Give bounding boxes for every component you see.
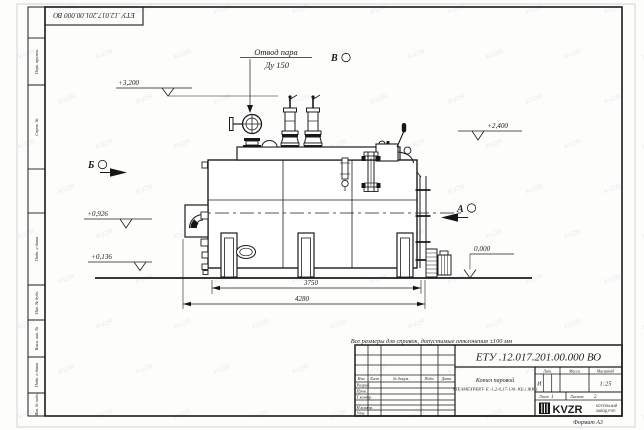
lit-label: Лит. — [542, 368, 552, 373]
margin-label: Справ. № — [34, 118, 39, 135]
elevation-mark: +2,400 — [458, 122, 522, 140]
margin-label: Подп. и дата — [34, 363, 39, 389]
drawing-sheet: KVZRKVZRKVZRKVZRKVZRKVZRKVZRKVZRKVZRKVZR… — [0, 0, 644, 430]
support-leg — [298, 233, 314, 277]
callout-line1: Отвод пара — [254, 47, 297, 57]
callout-line2: Ду 150 — [264, 60, 290, 70]
title-block-left-grid: Изм. Лист № докум. Подп. Дата Разраб. Пр… — [355, 345, 455, 416]
view-label: Б — [87, 160, 95, 171]
product-model: STEAMEXPERT- Е -1,2-0,17-130- КБ ( ЖК ) — [453, 387, 538, 393]
view-mark-v: В — [330, 53, 350, 64]
mass-label: Масса — [568, 368, 580, 373]
dome-cap — [262, 141, 277, 148]
logo-text: KVZR — [553, 404, 583, 416]
manhole — [237, 246, 256, 259]
safety-valve — [281, 95, 299, 148]
flipped-doc-number: ЕТУ .12.017.201.00.000 ВО — [52, 11, 136, 19]
elevation-mark: 0,000 — [464, 245, 514, 278]
lever-valve-box — [376, 123, 414, 163]
view-label: В — [330, 53, 338, 64]
sheet-no-label: Лист — [538, 394, 549, 399]
wall-nozzles — [201, 162, 208, 275]
margin-columns: Перв. примен. Справ. № Подп. и дата Инв.… — [28, 38, 45, 417]
lit-value: И — [536, 382, 542, 388]
elevation-mark: +0,926 — [84, 210, 152, 228]
margin-label: Инв. № дубл. — [34, 291, 39, 315]
company-logo: KVZR КОТЕЛЬНЫЙ ЗАВОД РЭП — [539, 403, 618, 417]
tb-header-cell: Подп. — [423, 376, 434, 381]
format-label: Формат А3 — [573, 420, 603, 426]
view-arrow-left — [441, 213, 458, 222]
view-arrow-right — [110, 168, 127, 177]
elevation-value: 0,000 — [474, 245, 491, 253]
tb-row-label: Пров. — [356, 389, 367, 394]
elevation-mark: +0,136 — [88, 253, 152, 271]
margin-label: Перв. примен. — [34, 49, 39, 75]
tb-row-label: Н.контр. — [356, 405, 374, 410]
elevation-mark: +3,200 — [116, 79, 278, 96]
tb-row-label: Разраб. — [356, 383, 371, 388]
sheet-no-value: 1 — [551, 395, 554, 400]
support-leg — [221, 233, 237, 277]
tb-header-cell: Изм. — [356, 376, 365, 381]
scale-value: 1:25 — [600, 381, 613, 388]
view-mark-b: Б — [87, 160, 127, 177]
flipped-docnumber-box: ЕТУ .12.017.201.00.000 ВО — [45, 7, 143, 25]
company-line1: КОТЕЛЬНЫЙ — [596, 404, 618, 408]
title-block-right-grid: Лит. Масса Масштаб И 1:25 Лист 1 Листов … — [535, 367, 622, 400]
margin-label: Инв. № подл. — [34, 393, 39, 416]
dimension-value: 4280 — [295, 295, 310, 303]
elevation-value: +0,926 — [87, 210, 108, 218]
steam-outlet-callout: Отвод пара Ду 150 — [240, 47, 312, 113]
title-block: Изм. Лист № докум. Подп. Дата Разраб. Пр… — [355, 345, 622, 416]
support-leg — [397, 233, 413, 277]
steam-outlet-valve — [230, 115, 262, 148]
feed-pump — [426, 249, 451, 277]
doc-number: ЕТУ .12.017.201.00.000 ВО — [475, 352, 601, 364]
margin-label: Подп. и дата — [34, 237, 39, 263]
general-note: Все размеры для справок, допустимые откл… — [351, 338, 512, 345]
sheets-total-value: 2 — [594, 395, 597, 400]
product-name: Котел паровой — [475, 377, 514, 384]
elevation-value: +3,200 — [118, 79, 139, 87]
tb-header-cell: № докум. — [392, 376, 409, 381]
elevation-value: +2,400 — [487, 122, 508, 130]
safety-valve — [304, 95, 322, 148]
boiler-view — [95, 95, 532, 278]
tb-header-cell: Дата — [441, 376, 452, 381]
tb-row-label: Утв. — [357, 411, 366, 416]
tb-header-cell: Лист — [369, 376, 380, 381]
company-line2: ЗАВОД РЭП — [596, 409, 616, 413]
burner-box — [185, 205, 208, 237]
tb-row-label: Т.контр. — [357, 395, 373, 400]
elevation-value: +0,136 — [91, 253, 112, 261]
margin-label: Взам. инв. № — [34, 327, 39, 351]
view-label: А — [456, 204, 464, 215]
scale-label: Масштаб — [596, 368, 615, 373]
sheets-total-label: Листов — [569, 394, 584, 399]
dimension-value: 3750 — [303, 279, 319, 287]
boiler-drawing-svg: Перв. примен. Справ. № Подп. и дата Инв.… — [0, 0, 644, 430]
